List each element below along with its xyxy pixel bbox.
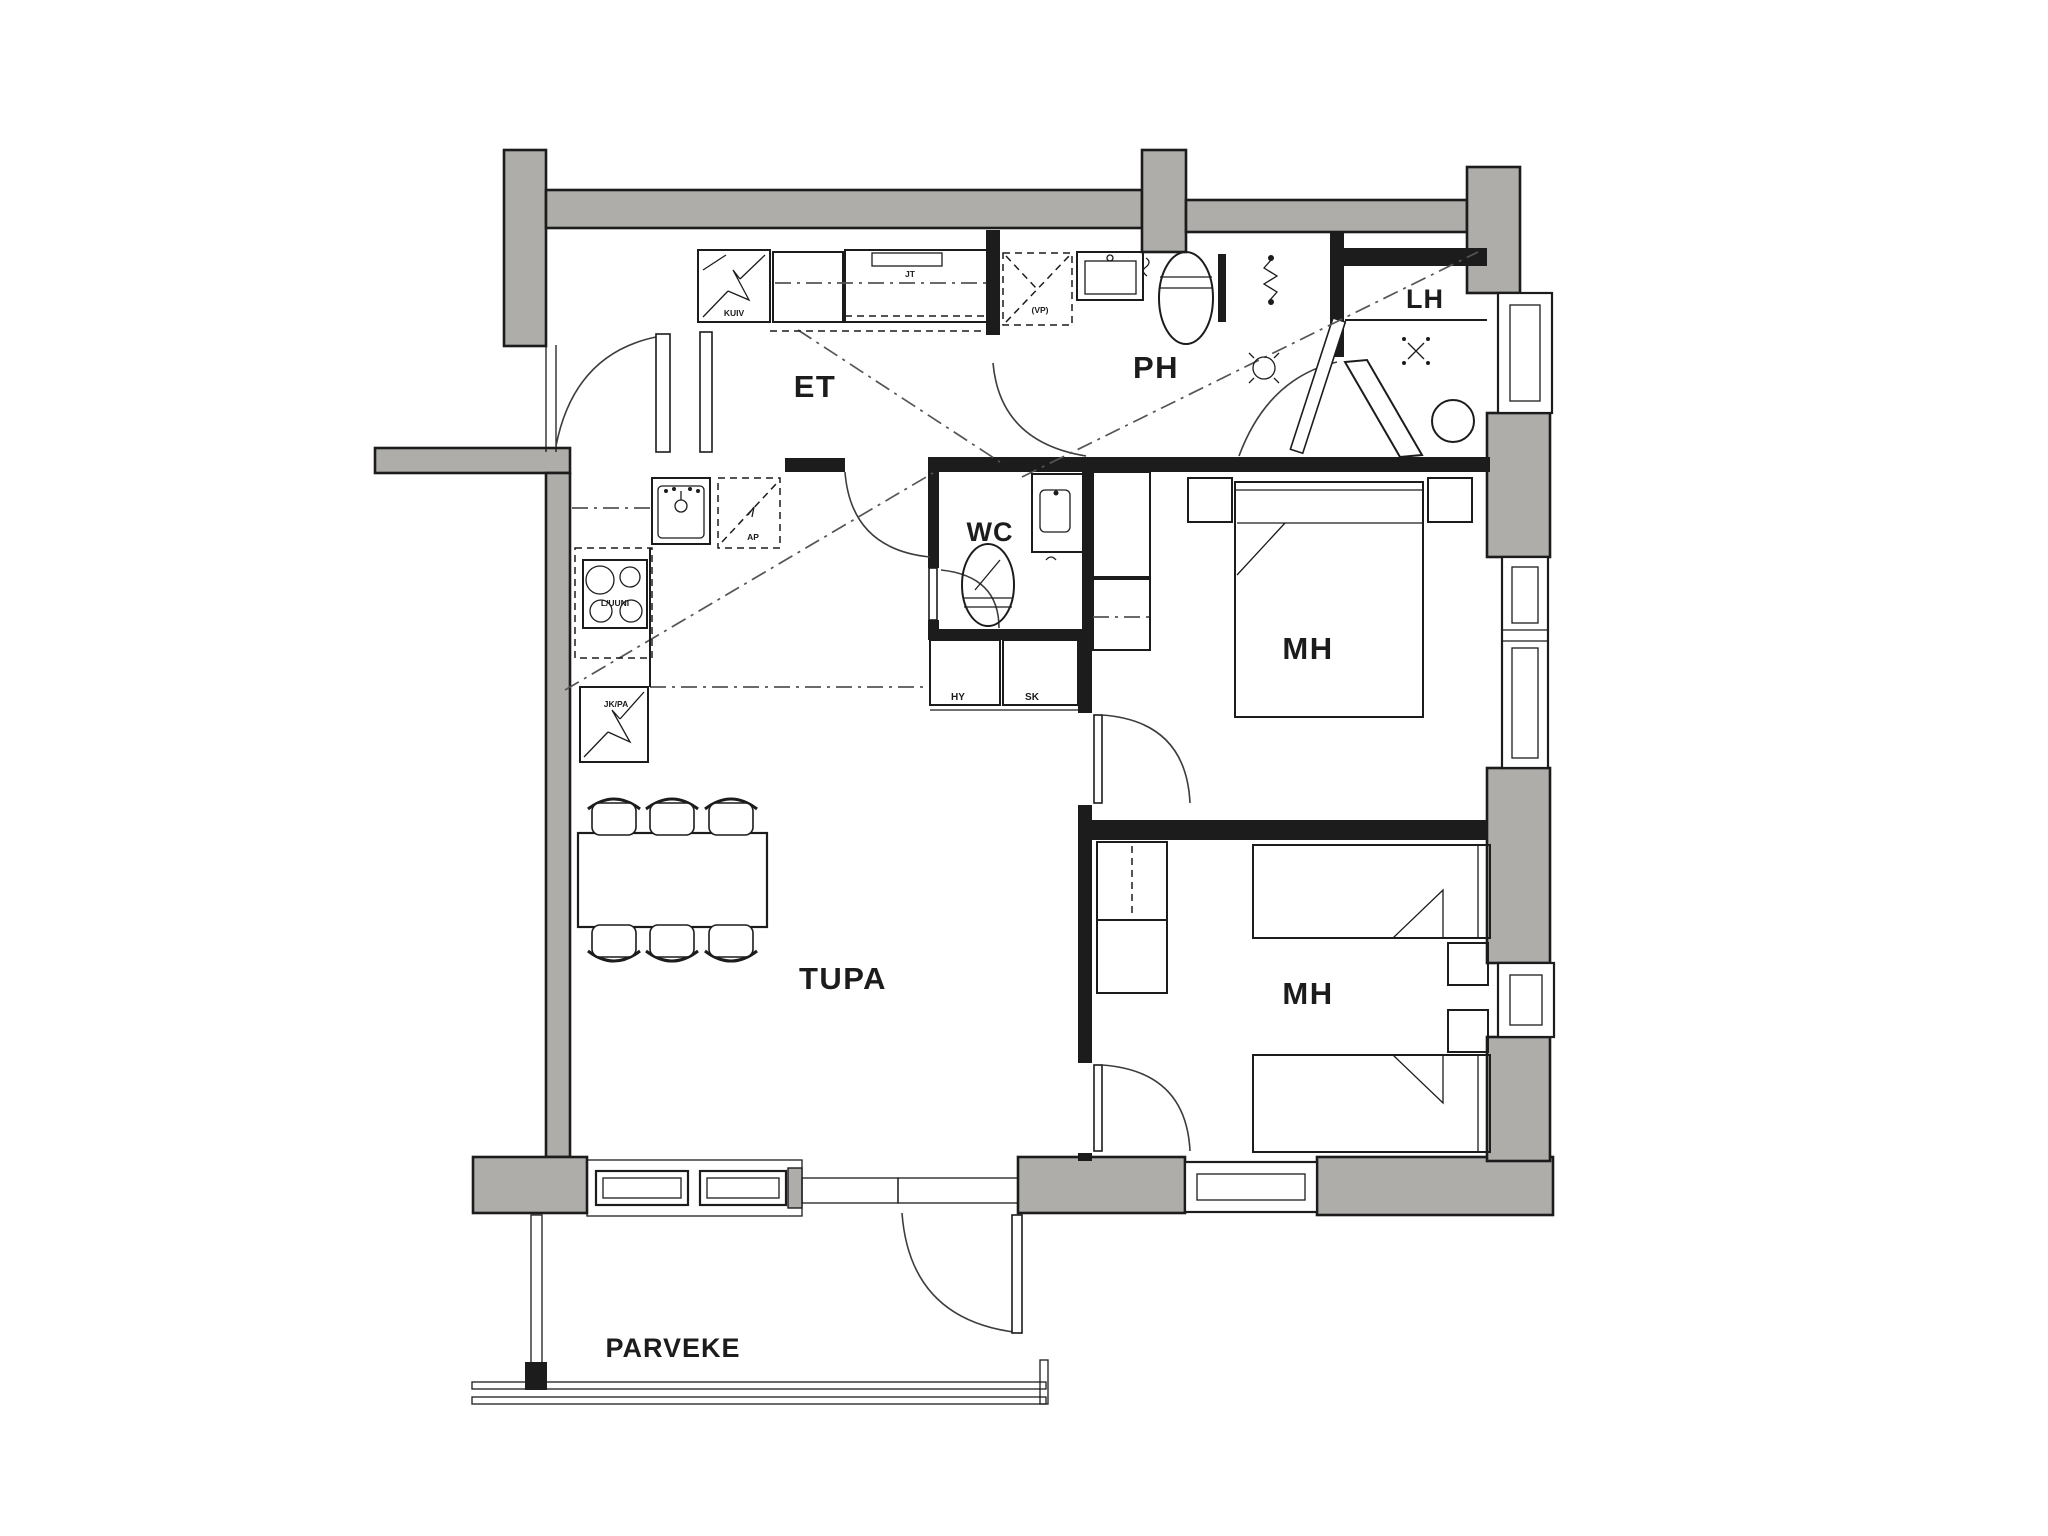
wall-left — [546, 473, 570, 1157]
window-mh1-east — [1502, 557, 1548, 768]
wall-lh-top — [1330, 248, 1487, 266]
wall-wc-top — [928, 463, 1093, 472]
mh2-bed-bottom — [1253, 1055, 1490, 1152]
room-label-mh-bottom: MH — [1282, 976, 1333, 1011]
wall-top — [546, 190, 1142, 228]
mh2-nightstand-2 — [1448, 1010, 1488, 1052]
wall-right-2 — [1487, 768, 1550, 963]
entry-door — [556, 334, 670, 452]
mh1-wardrobes — [1093, 472, 1150, 650]
wall-right-3 — [1487, 1037, 1550, 1161]
wall-tupa-mh1-b — [1078, 805, 1092, 1063]
label-kuiv: KUIV — [724, 308, 745, 318]
mh1-double-bed — [1235, 482, 1423, 717]
wall-vestibule-partition — [700, 332, 712, 452]
door-passage — [845, 472, 930, 557]
wall-top-right-post — [1142, 150, 1186, 252]
door-ph-lh — [1239, 318, 1345, 456]
radiator — [1264, 255, 1277, 305]
window-tupa-south — [587, 1160, 802, 1216]
mh1-nightstand-left — [1188, 478, 1232, 522]
door-mh2 — [1094, 1065, 1190, 1151]
ph-partition — [1218, 254, 1226, 322]
label-stove: L/UUNI — [601, 598, 629, 608]
wall-entry-pillar — [504, 150, 546, 346]
room-label-wc: WC — [967, 517, 1014, 547]
door-et-ph — [993, 363, 1086, 456]
wall-mh1-mh2-divider — [1092, 820, 1487, 840]
label-hy: HY — [951, 692, 965, 703]
window-mh2-south — [1185, 1162, 1317, 1212]
window-lh-east — [1498, 293, 1552, 413]
sauna-bench-step — [1345, 360, 1422, 457]
wall-left-stub — [375, 448, 570, 473]
wc-sink — [1032, 474, 1085, 560]
label-jkpa: JK/PA — [604, 699, 628, 709]
wall-right-1 — [1487, 413, 1550, 557]
ph-sink — [1077, 252, 1149, 300]
floorplan-canvas: ET PH LH WC MH MH TUPA PARVEKE KUIV JT (… — [0, 0, 2048, 1536]
floor-drain-icon — [1402, 337, 1430, 365]
wall-top-right-band — [1186, 200, 1467, 232]
wall-passage-left — [785, 458, 845, 472]
et-fixtures — [698, 250, 988, 331]
dining-table — [578, 833, 767, 927]
toilet — [1159, 252, 1213, 344]
dining-set — [578, 799, 767, 961]
mh2-wardrobe — [1097, 842, 1167, 993]
balcony-rail-front-2 — [472, 1397, 1046, 1404]
label-vp: (VP) — [1032, 305, 1049, 315]
mh1-nightstand-right — [1428, 478, 1472, 522]
balcony-door — [802, 1178, 1022, 1333]
balcony — [472, 1215, 1048, 1404]
wc-fixtures — [930, 474, 1085, 710]
label-jt: JT — [905, 269, 916, 279]
wall-bottom-mid — [1018, 1157, 1185, 1213]
mh1-furniture — [1093, 472, 1472, 717]
kitchen-sink — [652, 478, 710, 544]
wall-wc-left — [928, 463, 939, 568]
room-label-et: ET — [794, 369, 837, 404]
wall-wc-bottom — [928, 629, 1093, 640]
balcony-rail-front-1 — [472, 1382, 1046, 1389]
mh2-bed-top — [1253, 845, 1490, 938]
lh-fixtures — [1345, 320, 1487, 457]
label-ap: AP — [747, 532, 759, 542]
label-sk: SK — [1025, 692, 1040, 703]
balcony-post — [525, 1362, 547, 1390]
room-label-lh: LH — [1406, 284, 1444, 314]
ceiling-light-icon — [1249, 353, 1279, 383]
kitchen-fixtures — [572, 478, 780, 762]
room-label-tupa: TUPA — [799, 961, 887, 996]
room-label-parveke: PARVEKE — [605, 1333, 740, 1363]
wall-tupa-mh2 — [1078, 1153, 1092, 1161]
door-mh1 — [1094, 715, 1190, 803]
wall-corner-ne — [1467, 167, 1520, 293]
floorplan-svg: ET PH LH WC MH MH TUPA PARVEKE KUIV JT (… — [0, 0, 2048, 1536]
et-cabinet — [773, 252, 843, 322]
window-mh2-east — [1498, 963, 1554, 1037]
room-label-mh-top: MH — [1282, 631, 1333, 666]
wall-corner-sw — [473, 1157, 587, 1213]
sauna-stove — [1432, 400, 1474, 442]
mh2-nightstand-1 — [1448, 943, 1488, 985]
coat-closet — [770, 250, 988, 331]
wall-bottom-right — [1317, 1157, 1553, 1215]
wall-tupa-mh1-a — [1078, 640, 1092, 713]
room-label-ph: PH — [1133, 350, 1179, 385]
wc-toilet — [962, 544, 1014, 626]
